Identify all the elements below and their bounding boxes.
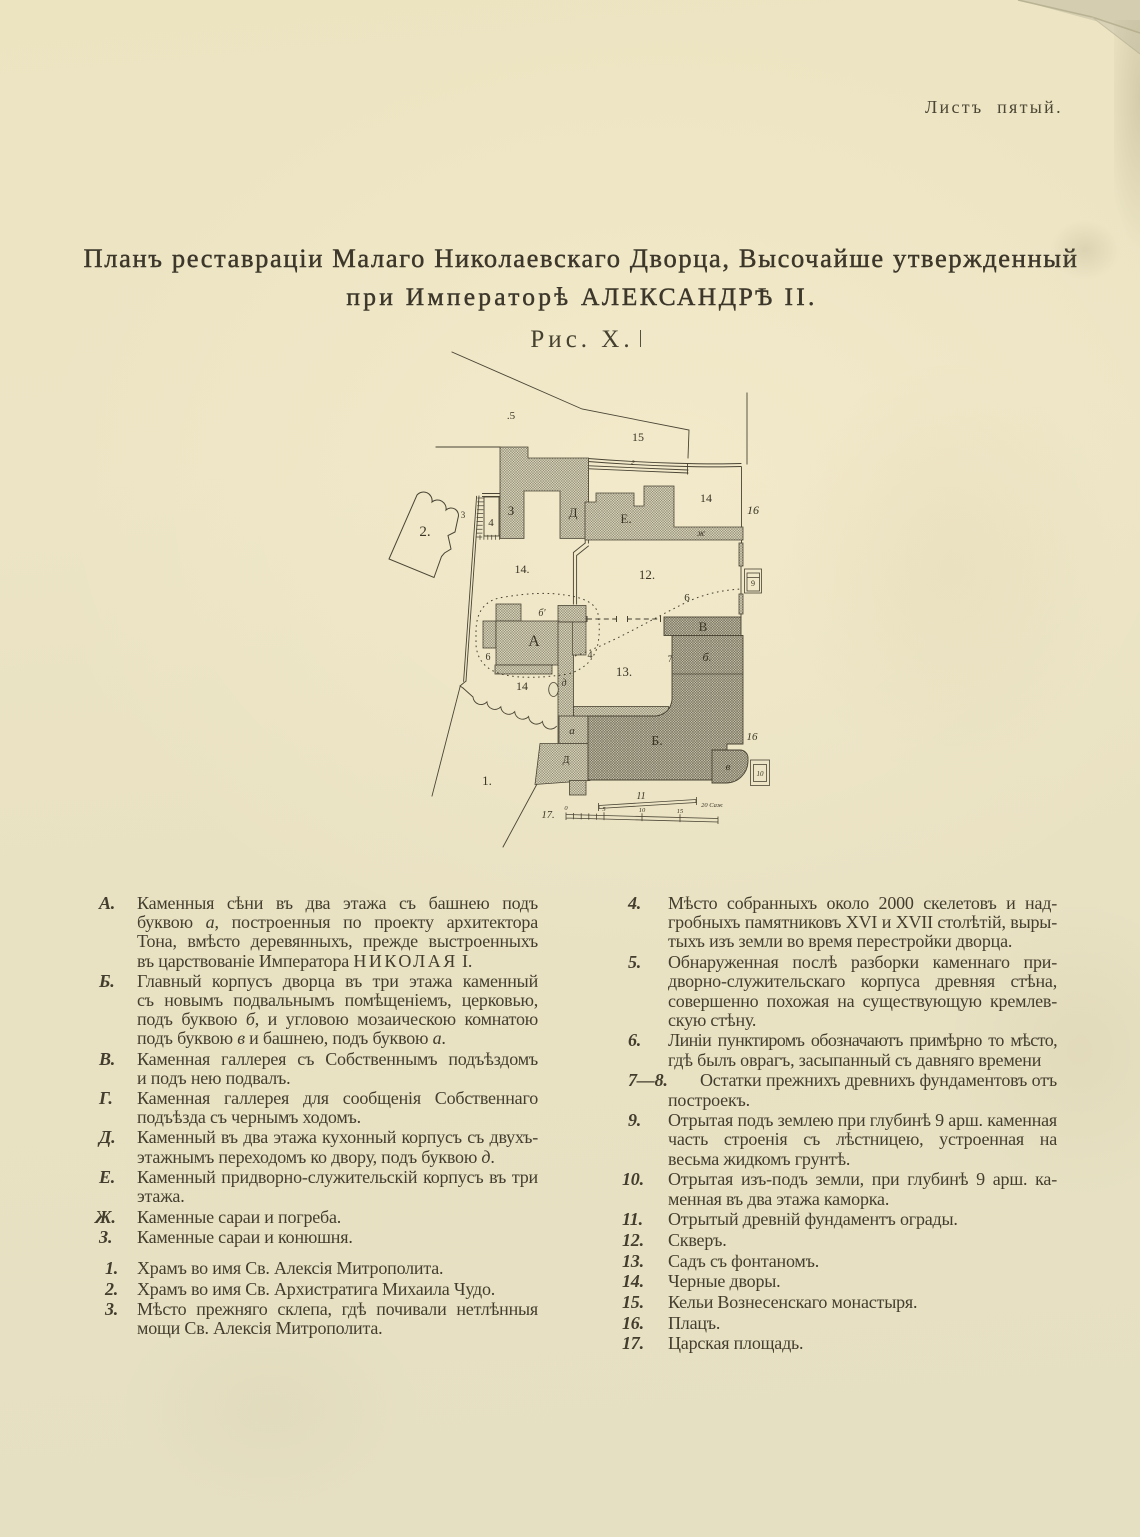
svg-text:а: а <box>569 725 575 737</box>
svg-text:6: 6 <box>486 652 491 663</box>
svg-text:10: 10 <box>639 807 646 814</box>
svg-text:Д: Д <box>569 505 578 520</box>
svg-text:4: 4 <box>588 650 593 661</box>
svg-text:16: 16 <box>747 731 759 743</box>
svg-text:16: 16 <box>747 503 759 517</box>
svg-text:ж: ж <box>697 528 706 538</box>
svg-text:З: З <box>508 503 515 518</box>
svg-text:12.: 12. <box>639 567 655 582</box>
svg-text:Д: Д <box>563 755 570 766</box>
svg-text:А: А <box>528 633 540 650</box>
svg-text:0: 0 <box>564 805 568 812</box>
svg-text:6: 6 <box>684 592 690 604</box>
svg-text:1.: 1. <box>482 773 492 788</box>
svg-text:15: 15 <box>677 808 684 815</box>
svg-text:7: 7 <box>668 654 673 664</box>
svg-text:20 Саж: 20 Саж <box>701 802 723 809</box>
svg-text:17.: 17. <box>541 810 554 821</box>
svg-text:г: г <box>631 457 635 467</box>
svg-text:10: 10 <box>757 770 765 778</box>
svg-text:9: 9 <box>751 579 755 588</box>
svg-text:5: 5 <box>602 806 606 813</box>
svg-text:.5: .5 <box>507 410 516 422</box>
svg-text:В: В <box>699 619 708 634</box>
svg-text:2.: 2. <box>419 524 430 540</box>
svg-text:д: д <box>561 678 566 689</box>
svg-text:11: 11 <box>636 791 645 802</box>
svg-text:4: 4 <box>488 517 494 529</box>
svg-text:13.: 13. <box>616 664 632 679</box>
svg-text:14.: 14. <box>515 562 530 576</box>
svg-text:15: 15 <box>632 430 644 444</box>
svg-text:б.: б. <box>702 650 711 664</box>
svg-text:Б.: Б. <box>651 734 663 749</box>
svg-text:14: 14 <box>700 491 712 505</box>
svg-text:3: 3 <box>461 510 466 520</box>
svg-text:в: в <box>726 761 731 773</box>
svg-text:Е.: Е. <box>620 511 631 526</box>
svg-text:б': б' <box>538 608 546 619</box>
svg-text:14: 14 <box>516 679 528 693</box>
